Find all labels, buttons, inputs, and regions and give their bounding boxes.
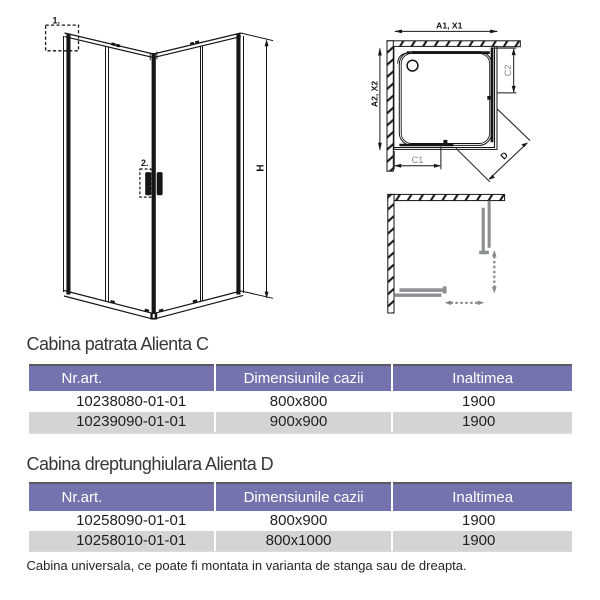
svg-text:1.: 1. (53, 15, 61, 25)
svg-text:H: H (256, 164, 267, 171)
svg-text:A2, X2: A2, X2 (369, 81, 379, 107)
svg-text:A1, X1: A1, X1 (436, 20, 462, 30)
svg-text:D: D (498, 150, 510, 162)
svg-text:C2: C2 (503, 65, 513, 77)
svg-text:2.: 2. (141, 158, 149, 168)
svg-text:C1: C1 (412, 155, 424, 165)
